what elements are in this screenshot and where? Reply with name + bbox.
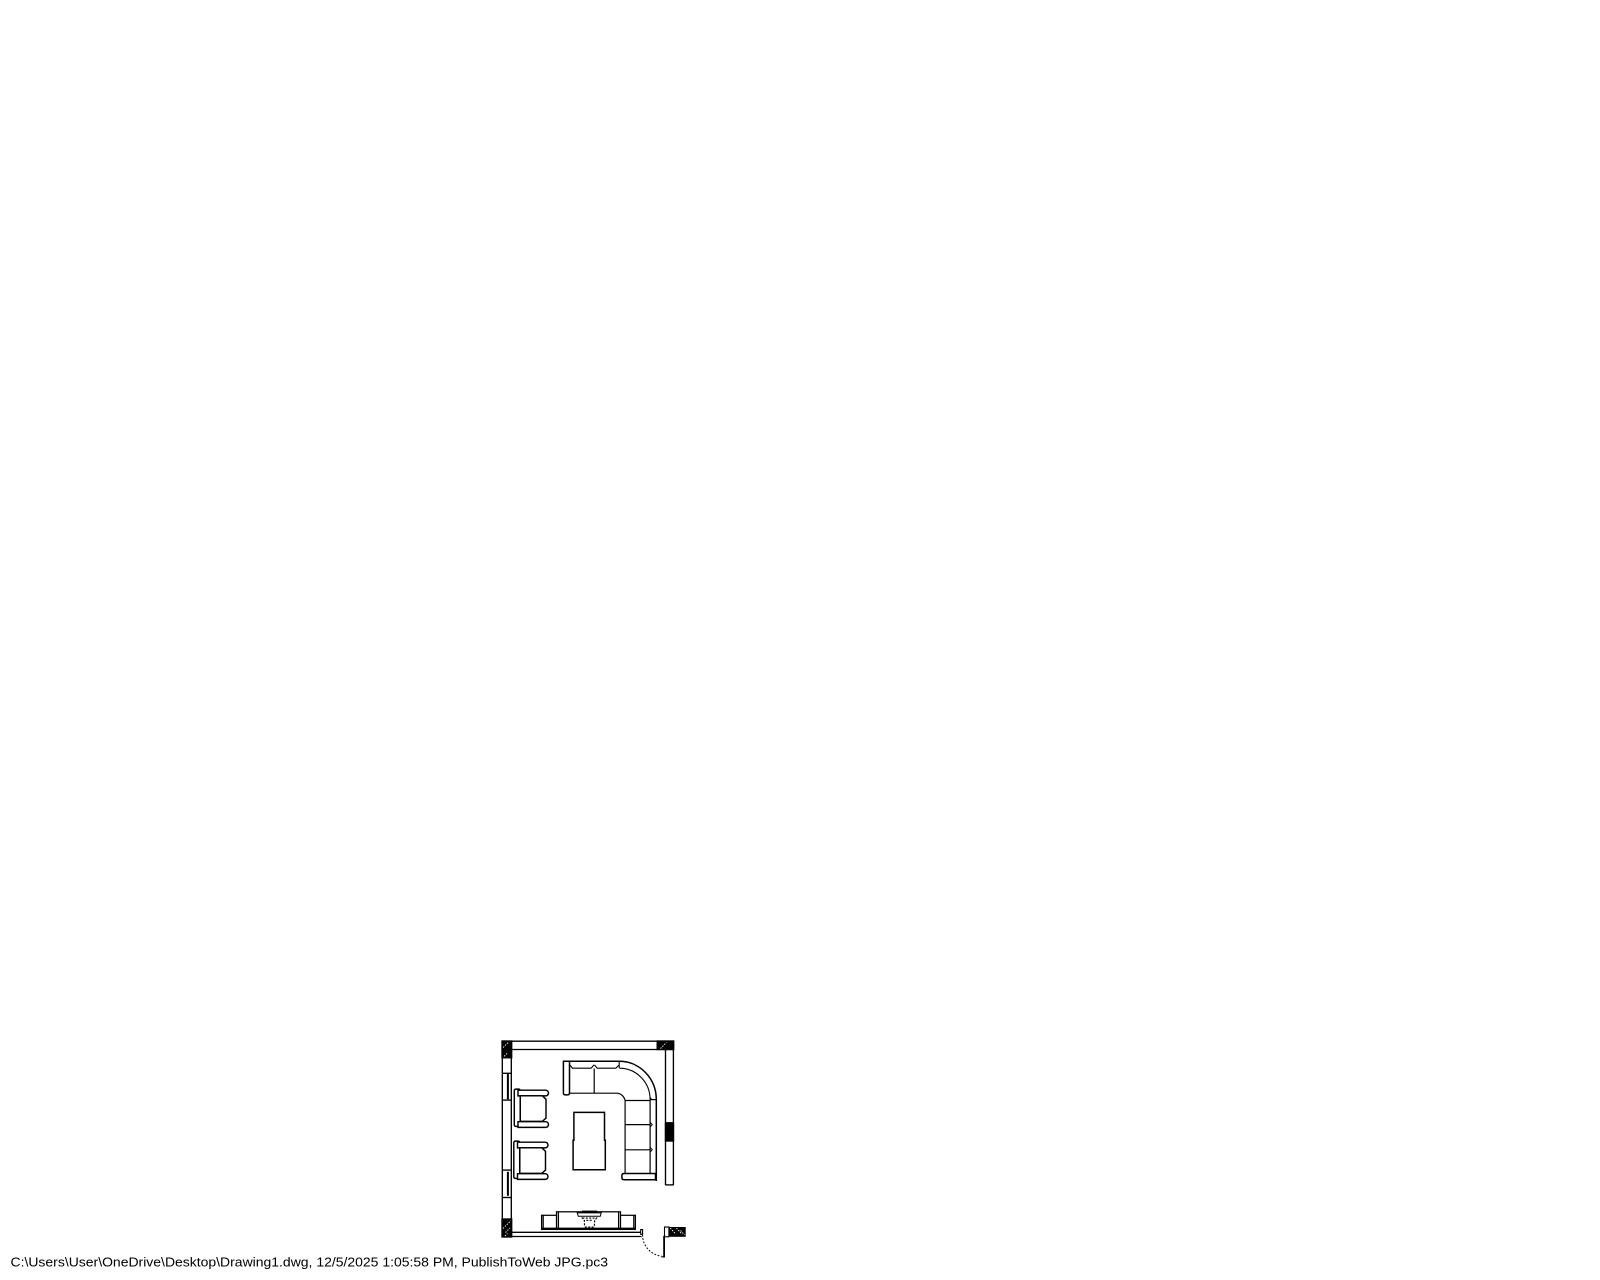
svg-text:C:\Users\User\OneDrive\Desktop: C:\Users\User\OneDrive\Desktop\Drawing1.… (11, 1254, 609, 1269)
